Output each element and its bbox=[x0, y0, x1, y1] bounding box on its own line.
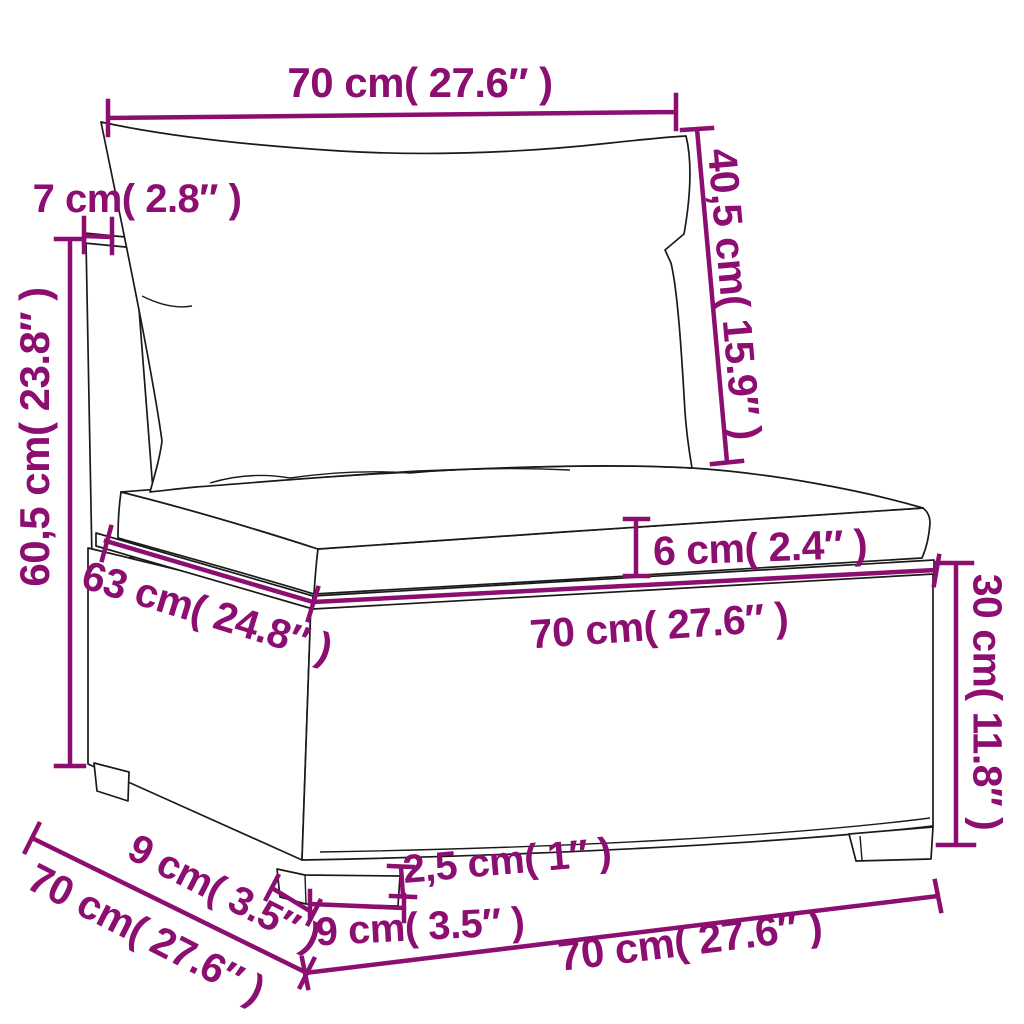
leg-front-left-edge bbox=[305, 875, 306, 904]
dim-label-seat-cushion-thickness: 6 cm( 2.4″ ) bbox=[652, 524, 867, 572]
dim-label-back-panel-thickness: 7 cm( 2.8″ ) bbox=[33, 179, 242, 219]
dim-label-base-height: 30 cm( 11.8″ ) bbox=[967, 574, 1008, 831]
dim-overall-height-line bbox=[56, 239, 84, 766]
dim-label-back-cushion-width: 70 cm( 27.6″ ) bbox=[287, 62, 552, 104]
dim-label-overall-height: 60,5 cm( 23.8″ ) bbox=[14, 287, 56, 586]
dim-label-leg-width: 9 cm( 3.5″ ) bbox=[315, 902, 526, 953]
dimension-diagram: 70 cm( 27.6″ ) 7 cm( 2.8″ ) 40,5 cm( 15.… bbox=[0, 0, 1024, 1024]
